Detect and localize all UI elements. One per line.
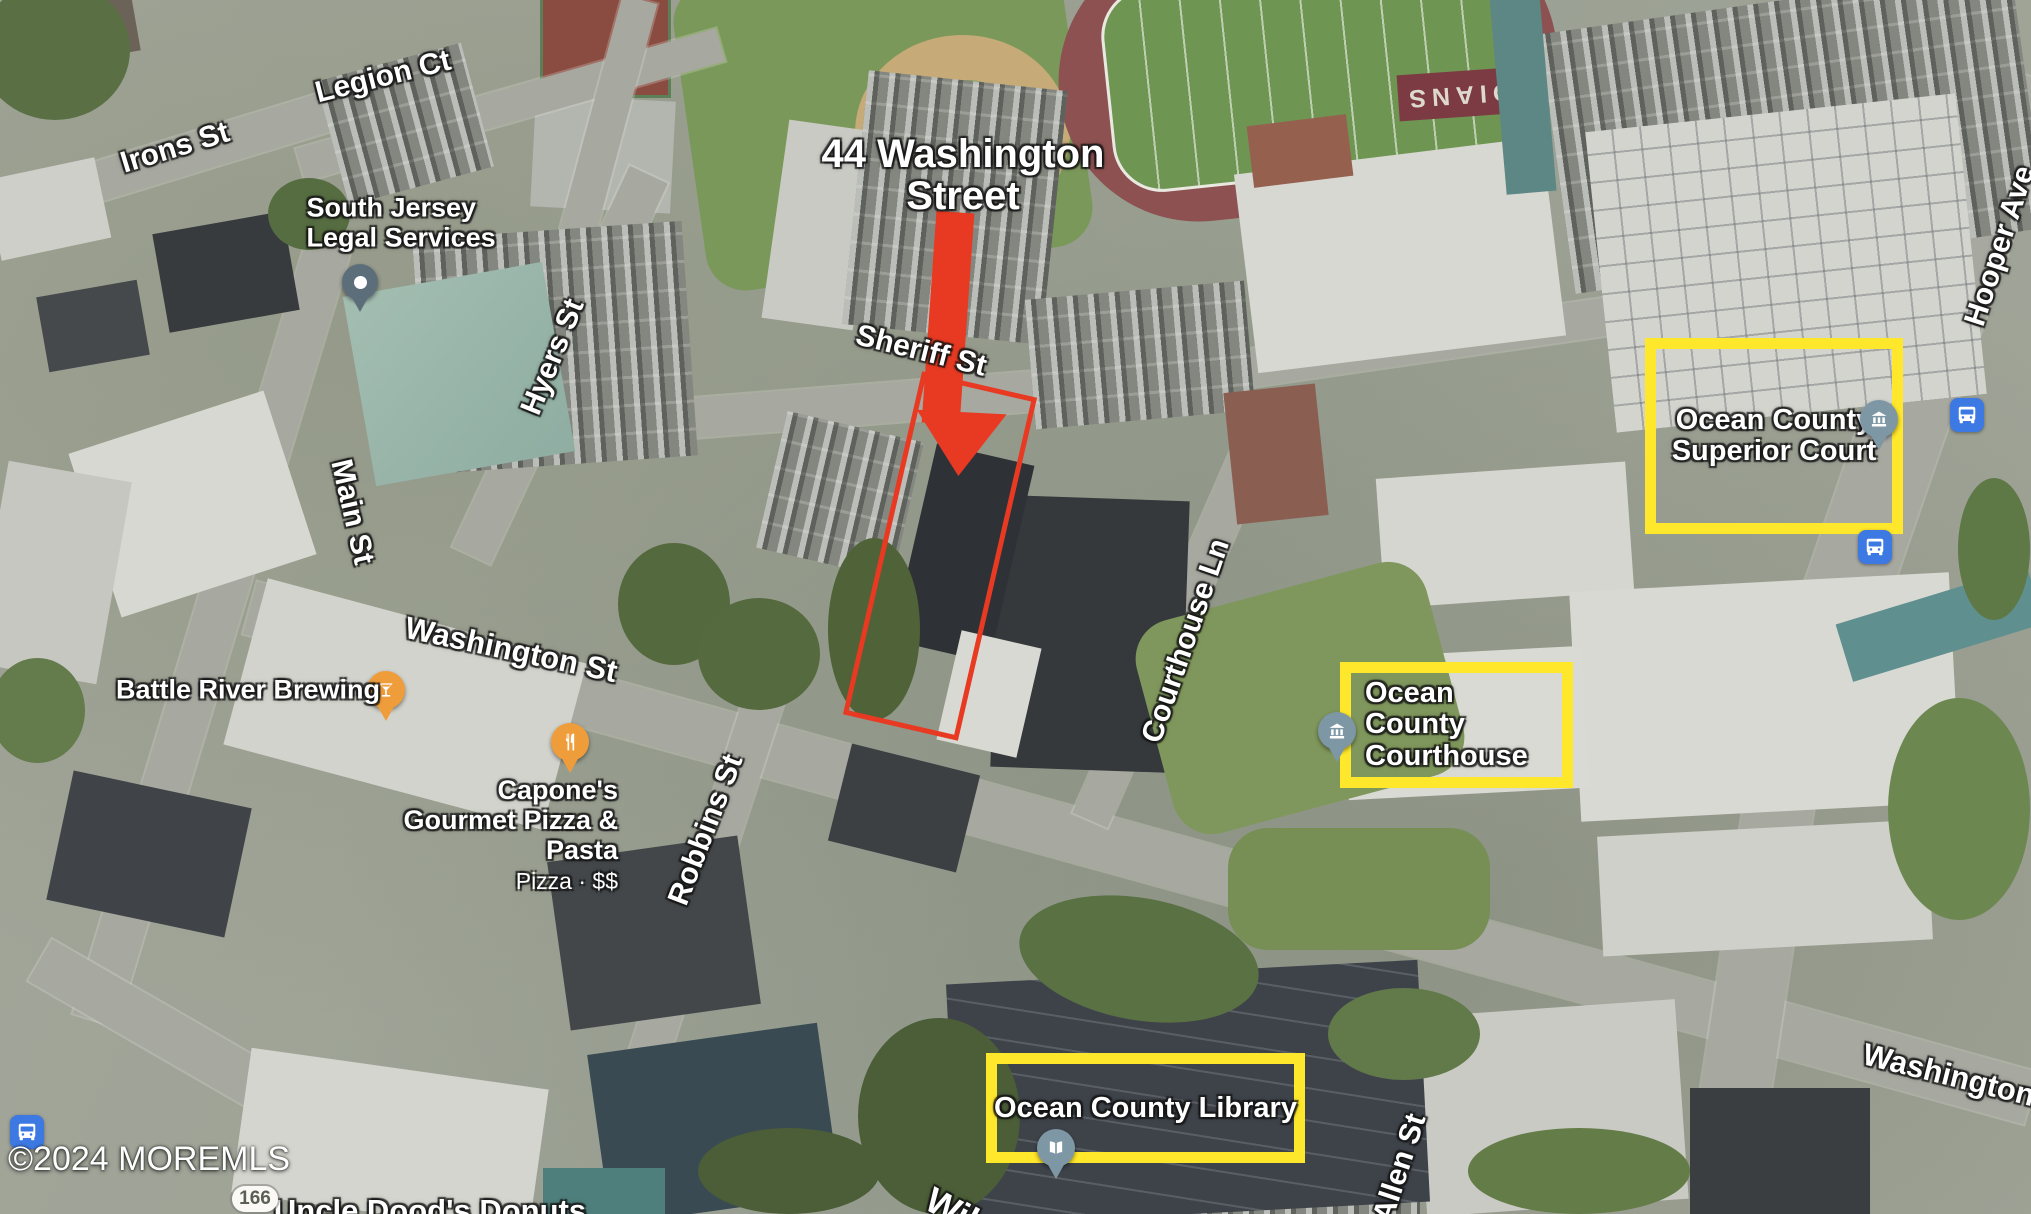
- tree-cluster: [0, 0, 130, 120]
- poi-label-capones[interactable]: Capone's Gourmet Pizza & Pasta Pizza · $…: [380, 775, 618, 895]
- legal-services-pin[interactable]: [342, 264, 378, 312]
- highlight-courthouse-label: Ocean County Courthouse: [1365, 678, 1555, 772]
- poi-label-uncle-doods[interactable]: Uncle Dood's Donuts: [274, 1193, 586, 1214]
- tree-cluster: [1328, 988, 1480, 1080]
- tree-cluster: [1958, 478, 2030, 620]
- building: [1690, 1088, 1870, 1214]
- building: [231, 1048, 548, 1214]
- bank-icon: [1318, 712, 1356, 750]
- building: [1223, 384, 1328, 525]
- poi-label-battle-river[interactable]: Battle River Brewing: [116, 675, 380, 706]
- superior-court-pin[interactable]: [1860, 400, 1898, 450]
- route-badge-166: 166: [232, 1186, 278, 1212]
- dot-icon: [342, 264, 378, 300]
- lawn: [1228, 828, 1490, 950]
- bank-icon: [1860, 400, 1898, 438]
- restaurant-icon: [551, 723, 589, 761]
- capones-pin[interactable]: [551, 723, 589, 773]
- library-pin[interactable]: [1037, 1129, 1075, 1179]
- highlight-library-label: Ocean County Library: [994, 1092, 1297, 1125]
- courthouse-pin[interactable]: [1318, 712, 1356, 762]
- building: [46, 771, 251, 938]
- poi-label-capones-detail: Pizza · $$: [380, 868, 618, 895]
- highlight-superior-court-label: Ocean County Superior Court: [1667, 405, 1882, 468]
- building: [36, 280, 150, 373]
- street-label-main: Main St: [323, 456, 380, 568]
- subject-label: 44 Washington Street: [798, 133, 1128, 217]
- bus-stop-icon[interactable]: [1858, 530, 1892, 564]
- tree-cluster: [698, 598, 820, 710]
- tree-cluster: [0, 658, 85, 763]
- building: [1597, 819, 1933, 956]
- building: [828, 744, 980, 873]
- poi-label-capones-name: Capone's Gourmet Pizza & Pasta: [380, 775, 618, 866]
- poi-label-legal-services[interactable]: South Jersey Legal Services: [307, 193, 502, 252]
- highlight-courthouse: Ocean County Courthouse: [1340, 662, 1573, 788]
- building: [0, 461, 132, 685]
- bus-stop-icon[interactable]: [1950, 398, 1984, 432]
- tree-cluster: [1468, 1128, 1690, 1214]
- tree-cluster: [1888, 698, 2030, 920]
- subject-arrow-head: [913, 410, 1006, 479]
- building: [1247, 114, 1354, 188]
- map-attribution: ©2024 MOREMLS: [8, 1140, 290, 1179]
- satellite-map[interactable]: INDIANS: [0, 0, 2031, 1214]
- parking-lot: [1025, 281, 1255, 430]
- book-icon: [1037, 1129, 1075, 1167]
- tree-cluster: [698, 1128, 880, 1214]
- highlight-library: Ocean County Library: [986, 1053, 1305, 1163]
- building: [0, 157, 111, 260]
